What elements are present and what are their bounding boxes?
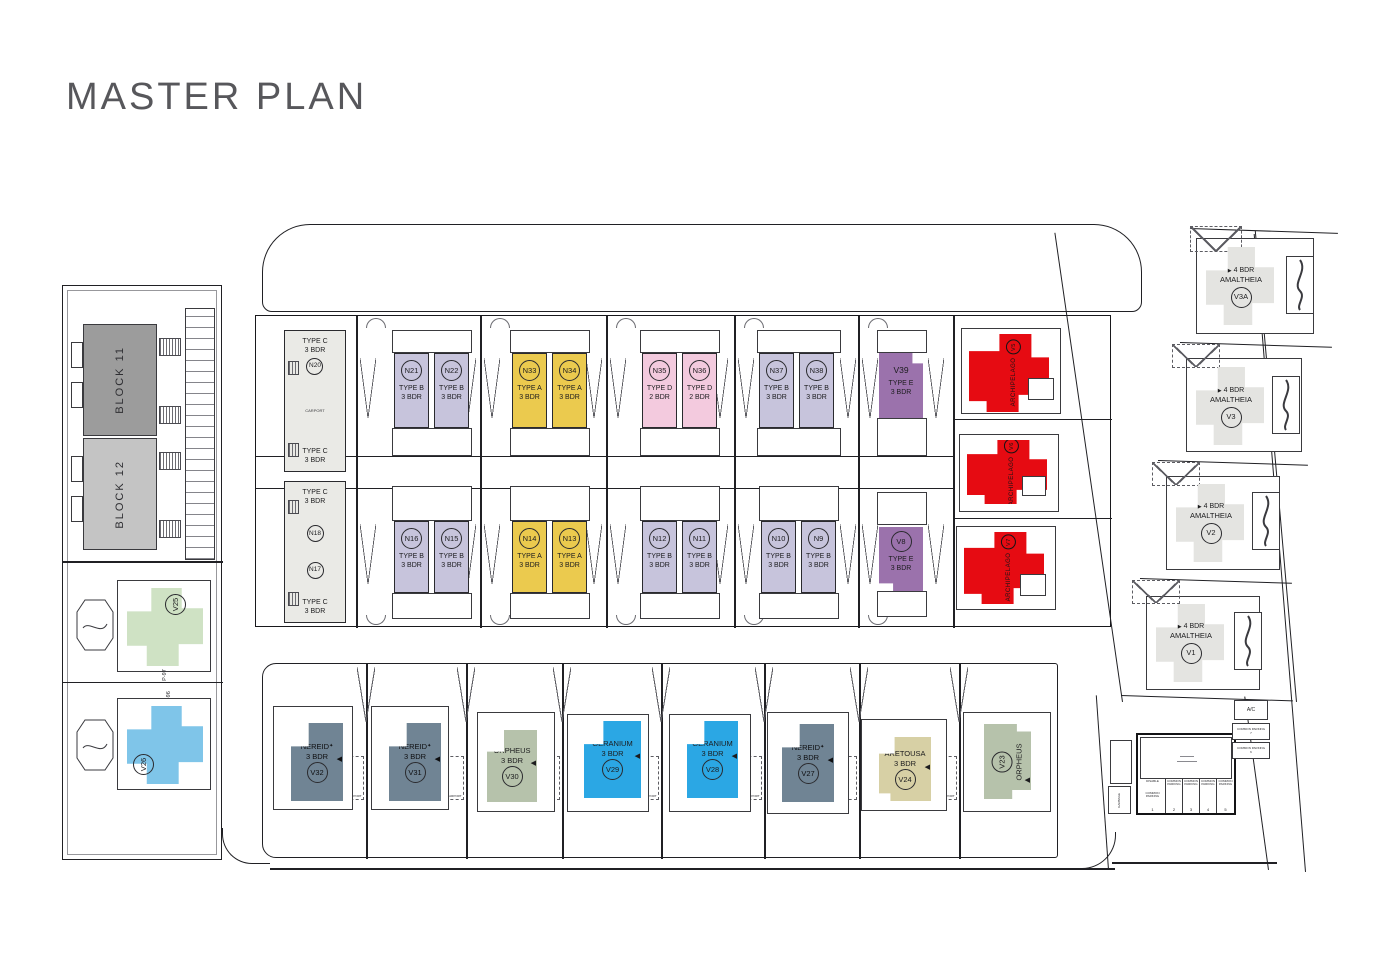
unit-type: TYPE B (766, 552, 791, 561)
unit-bdr: 3 BDR (401, 561, 422, 570)
stall-number: 3 (1190, 807, 1192, 812)
entry-arrow-icon: ◀ (435, 756, 440, 764)
unit-id-badge: N34 (559, 360, 580, 381)
entry-flag-icon: ▶ (1178, 624, 1182, 630)
stall-number: 7 (1250, 732, 1252, 735)
pool-shape (1287, 257, 1313, 313)
unit-id-badge: N16 (401, 528, 422, 549)
porch (759, 593, 839, 619)
unit-id-badge: N13 (559, 528, 580, 549)
villa-id-badge: V3 (1221, 407, 1242, 428)
stairs (288, 443, 299, 457)
unit-label-group: TYPE C 3 BDR (302, 598, 327, 616)
pool-shape (75, 718, 115, 772)
unit-bdr: 3 BDR (401, 393, 422, 402)
driveway-mark (610, 524, 626, 584)
door-swing (868, 318, 888, 328)
unit-id-badge: N21 (401, 360, 422, 381)
plan-detail (1180, 756, 1194, 757)
porch (877, 492, 927, 525)
villa-bdr: 3 BDR (501, 756, 523, 765)
villa-id: V1 (1186, 648, 1195, 658)
divider-line (734, 316, 736, 628)
porch (392, 486, 472, 521)
villa-id-badge: V30 (502, 766, 523, 787)
unit-type: TYPE C (302, 488, 327, 497)
unit-type: TYPE C (302, 598, 327, 607)
unit-bdr: 3 BDR (305, 607, 326, 616)
unit-type: TYPE B (399, 384, 424, 393)
stall-label: COMMON PARKING (1217, 780, 1234, 787)
west-section: BLOCK 11 BLOCK 12 V25 P-97 P-96 V26 (62, 285, 222, 860)
main-terrace-block: TYPE C 3 BDR N20 CARPORT TYPE C 3 BDR TY… (255, 315, 1111, 627)
stall-label: COMMON PARKING (1183, 780, 1199, 787)
unit-id: N11 (693, 534, 706, 544)
visitor-court (1140, 737, 1232, 779)
plan-block-n20: TYPE C 3 BDR N20 CARPORT TYPE C 3 BDR (284, 330, 346, 472)
unit-id: N10 (772, 534, 786, 544)
driveway-mark (586, 358, 602, 418)
common-parking-side: COMMON PARKING7 (1232, 723, 1270, 740)
driveway-mark (586, 524, 602, 584)
villa-label-group: V23 ORPHEUS (984, 724, 1031, 799)
villa-id: V7 (1006, 538, 1012, 546)
unit-id-badge: N33 (519, 360, 540, 381)
unit-type: TYPE B (764, 384, 789, 393)
unit-v8: V8TYPE E3 BDR (879, 527, 923, 591)
parking-label: P-97 (162, 669, 168, 681)
pool-shape (1235, 613, 1261, 669)
plot-divider (953, 518, 1112, 519)
villa-id-badge: V2 (1201, 523, 1222, 544)
unit-type: TYPE A (557, 552, 582, 561)
unit-id-badge: N14 (519, 528, 540, 549)
villa-bdr: 3 BDR (601, 749, 623, 758)
porch (640, 486, 720, 521)
villa-id-badge: V27 (798, 763, 819, 784)
unit-n16: N16TYPE B3 BDR (394, 521, 429, 593)
unit-bdr: 3 BDR (305, 497, 326, 506)
porch (757, 330, 841, 353)
driveway-mark (1132, 580, 1180, 604)
unit-id-badge: N35 (649, 360, 670, 381)
mews-lane-edge (256, 456, 953, 457)
villa-name: ARCHIPELAGO (1011, 358, 1017, 407)
parking-stall: COMMON PARKING2 (1166, 779, 1183, 813)
page-title: MASTER PLAN (66, 76, 367, 119)
villa-id: V2 (1206, 528, 1215, 538)
villa-id-badge: V29 (602, 759, 623, 780)
villa-id: V6 (1009, 442, 1015, 450)
villa-id: V3 (1226, 412, 1235, 422)
pool-shape (1273, 377, 1299, 433)
villa-id-badge: V23 (992, 751, 1013, 772)
villa-bdr: 4 BDR (1224, 387, 1245, 394)
carport-label: CARPORT (305, 409, 324, 413)
parking-stall: COMMON PARKING3 (1183, 779, 1200, 813)
driveway-mark (610, 358, 626, 418)
villa-id: V31 (408, 768, 421, 777)
unit-v39: V39TYPE E3 BDR (879, 353, 923, 418)
stall-number: 5 (1224, 807, 1226, 812)
unit-bdr: 2 BDR (649, 393, 670, 402)
unit-id-badge: N17 (307, 562, 324, 579)
unit-type: TYPE A (517, 384, 542, 393)
pool (1286, 256, 1314, 314)
unit-id: N34 (563, 366, 577, 376)
pool (75, 598, 115, 652)
villa-name: AMALTHEIA (1166, 511, 1256, 521)
villa-id-badge: V3A (1231, 287, 1252, 308)
entry-arrow-icon: ◀ (1025, 777, 1030, 785)
door-swing (616, 615, 636, 625)
ac-label: A/C (1247, 707, 1255, 713)
porch (877, 330, 927, 353)
divider-line (858, 316, 860, 628)
villa-id: V32 (310, 768, 323, 777)
plan-detail (1177, 761, 1197, 762)
unit-n21: N21TYPE B3 BDR (394, 353, 429, 428)
unit-bdr: 2 BDR (689, 393, 710, 402)
villa-id-badge: V25 (165, 594, 186, 615)
unit-bdr: 3 BDR (891, 564, 912, 573)
unit-type: TYPE B (804, 384, 829, 393)
unit-bdr: 3 BDR (768, 561, 789, 570)
entry-arrow-icon: ◀ (828, 757, 833, 765)
unit-bdr: 3 BDR (305, 456, 326, 465)
unit-n9: N9TYPE B3 BDR (801, 521, 836, 593)
parking-stall: COMMON PARKING4 (1200, 779, 1217, 813)
villa-name: ARCHIPELAGO (1009, 457, 1015, 506)
driveway-mark (840, 524, 856, 584)
stairs (159, 452, 181, 470)
unit-bdr: 3 BDR (689, 561, 710, 570)
unit-n13: N13TYPE A3 BDR (552, 521, 587, 593)
garbage-label: GARBAGE (1118, 793, 1121, 808)
pool-shape (75, 598, 115, 652)
villa-id: V23 (998, 755, 1007, 768)
driveway-mark (928, 358, 944, 418)
unit-bdr: 3 BDR (806, 393, 827, 402)
villa-id: V30 (505, 772, 518, 781)
villa-bdr: 4 BDR (1234, 267, 1255, 274)
driveway-mark (457, 667, 475, 722)
entry-arrow-icon: ◀ (635, 753, 640, 761)
unit-bdr: 3 BDR (766, 393, 787, 402)
villa-bdr: 3 BDR (797, 753, 819, 762)
pool-shape (1253, 493, 1279, 549)
entry-flag-icon: ▶ (1218, 388, 1222, 394)
stairs (288, 361, 299, 375)
unit-id-badge: N22 (441, 360, 462, 381)
villa-name: ORPHEUS (1015, 743, 1024, 780)
driveway-mark (928, 524, 944, 584)
door-swing (366, 615, 386, 625)
stall-label: COMMON PARKING (1200, 780, 1216, 787)
unit-id: N21 (405, 366, 419, 376)
porch (510, 593, 590, 619)
unit-type: TYPE A (557, 384, 582, 393)
porch (640, 593, 720, 619)
unit-id-badge: N20 (306, 358, 323, 375)
porch (392, 428, 472, 456)
block-11: BLOCK 11 (83, 324, 157, 436)
porch (392, 593, 472, 619)
unit-n14: N14TYPE A3 BDR (512, 521, 547, 593)
unit-n35: N35TYPE D2 BDR (642, 353, 677, 428)
star-icon: ✦ (329, 743, 333, 749)
villa-bdr: 3 BDR (701, 749, 723, 758)
door-swing (616, 318, 636, 328)
porch (510, 486, 590, 521)
plot-divider (953, 419, 1112, 420)
entry-arrow-icon: ◀ (337, 756, 342, 764)
unit-n38: N38TYPE B3 BDR (799, 353, 834, 428)
unit-id-badge: N36 (689, 360, 710, 381)
porch (757, 428, 841, 456)
unit-type: TYPE D (647, 384, 672, 393)
villa-bdr-line: ▶4 BDR (1186, 386, 1276, 395)
stairs (288, 592, 299, 606)
driveway-mark (652, 667, 670, 722)
unit-id-badge: N37 (766, 360, 787, 381)
south-road-line (270, 868, 1115, 870)
unit-type: TYPE B (806, 552, 831, 561)
stairs (159, 406, 181, 424)
unit-type: TYPE B (647, 552, 672, 561)
unit-id: N33 (523, 366, 537, 376)
unit-id-badge: N38 (806, 360, 827, 381)
door-swing (744, 318, 764, 328)
terrace (1020, 574, 1046, 596)
common-parking-block: DISABLECOMMON PARKING1 COMMON PARKING2 C… (1136, 733, 1236, 815)
villa-id-badge: V7 (1001, 535, 1016, 550)
driveway-mark (1172, 344, 1220, 368)
porch (510, 330, 590, 353)
plan-block-n18-n17: TYPE C 3 BDR N18 N17 TYPE C 3 BDR (284, 481, 346, 623)
unit-bdr: 3 BDR (559, 393, 580, 402)
unit-id-badge: N9 (808, 528, 829, 549)
unit-id-badge: N12 (649, 528, 670, 549)
villa-name: AMALTHEIA (1196, 275, 1286, 285)
villa-id-badge: V6 (1004, 439, 1019, 454)
unit-label-group: TYPE C 3 BDR (302, 447, 327, 465)
star-icon: ✦ (820, 744, 824, 750)
stall-label: COMMON PARKING (1140, 792, 1165, 799)
utility-box (1110, 740, 1132, 784)
common-bottom-line (1112, 862, 1277, 864)
unit-id: N14 (523, 534, 537, 544)
driveway-mark (850, 667, 868, 722)
unit-bdr: 3 BDR (891, 388, 912, 397)
villa-id: V29 (606, 765, 619, 774)
balcony (71, 342, 83, 368)
balcony (71, 496, 83, 522)
master-plan-page: MASTER PLAN BLOCK 11 BLOCK 12 V25 P-97 P… (0, 0, 1373, 977)
driveway-mark (738, 358, 754, 418)
villa-label-group: ▶4 BDR AMALTHEIA V2 (1166, 502, 1256, 544)
unit-bdr: 3 BDR (441, 393, 462, 402)
unit-id-badge: N15 (441, 528, 462, 549)
pool (1252, 492, 1280, 550)
unit-n33: N33TYPE A3 BDR (512, 353, 547, 428)
villa-id-badge: V32 (307, 762, 328, 783)
balcony (71, 382, 83, 408)
parking-stall: DISABLECOMMON PARKING1 (1140, 779, 1166, 813)
villa-label-group: ▶4 BDR AMALTHEIA V3 (1186, 386, 1276, 428)
entry-arrow-icon: ◀ (925, 764, 930, 772)
villa-id: V25 (171, 598, 180, 611)
divider-line (953, 316, 955, 628)
stairs (288, 500, 299, 514)
unit-n37: N37TYPE B3 BDR (759, 353, 794, 428)
pool (75, 718, 115, 772)
villa-bdr: 3 BDR (894, 759, 916, 768)
villa-v23-footprint: V23 ORPHEUS ◀ (984, 724, 1031, 799)
south-villas-row: CARPORT CARPORT CARPORT CARPORT CARPORT … (262, 663, 1058, 858)
villa-bdr: 3 BDR (404, 752, 426, 761)
porch (877, 418, 927, 456)
unit-id: N13 (563, 534, 577, 544)
unit-type: TYPE D (687, 384, 712, 393)
driveway-mark (862, 524, 878, 584)
unit-bdr: 3 BDR (441, 561, 462, 570)
unit-bdr: 3 BDR (649, 561, 670, 570)
unit-type: TYPE C (302, 447, 327, 456)
unit-id: N16 (405, 534, 419, 544)
villa-label-group: ▶4 BDR AMALTHEIA V3A (1196, 266, 1286, 308)
villa-id-badge: V24 (895, 769, 916, 790)
stall-number: 1 (1151, 807, 1153, 812)
unit-id-badge: N11 (689, 528, 710, 549)
unit-label-group: TYPE C 3 BDR N20 (302, 337, 327, 375)
star-icon: ✦ (427, 743, 431, 749)
villa-label-group: ▶4 BDR AMALTHEIA V1 (1146, 622, 1236, 664)
terrace (1022, 476, 1046, 496)
unit-bdr: 3 BDR (519, 393, 540, 402)
carport-label: CARPORT (447, 795, 462, 798)
villa-id: V3A (1234, 292, 1248, 302)
stall-label: COMMON PARKING (1166, 780, 1182, 787)
unit-type: TYPE B (439, 552, 464, 561)
villa-id: V28 (706, 765, 719, 774)
porch (877, 591, 927, 617)
entry-arrow-icon: ◀ (531, 760, 536, 768)
block-12-label: BLOCK 12 (114, 460, 126, 529)
unit-n10: N10TYPE B3 BDR (761, 521, 796, 593)
villa-name: AMALTHEIA (1186, 395, 1276, 405)
porch (510, 428, 590, 456)
block-11-label: BLOCK 11 (114, 346, 126, 414)
parking-stalls (185, 308, 215, 560)
unit-type: TYPE B (687, 552, 712, 561)
porch (392, 330, 472, 353)
villa-bdr: 4 BDR (1184, 623, 1205, 630)
unit-id: N18 (309, 530, 321, 538)
pool (1272, 376, 1300, 434)
villa-bdr-line: ▶4 BDR (1196, 266, 1286, 275)
unit-type: TYPE B (439, 384, 464, 393)
villa-id-badge: V28 (702, 759, 723, 780)
unit-n11: N11TYPE B3 BDR (682, 521, 717, 593)
unit-id-badge: N18 (307, 525, 324, 542)
stairs (159, 338, 181, 356)
unit-id: V8 (896, 537, 905, 547)
villa-id-badge: V26 (133, 754, 154, 775)
villa-id-badge: V1 (1181, 643, 1202, 664)
divider-line (480, 316, 482, 628)
villa-name: AMALTHEIA (1146, 631, 1236, 641)
unit-type: TYPE C (302, 337, 327, 346)
villa-name: ARCHIPELAGO (1006, 553, 1012, 602)
common-parking-side: COMMON PARKING6 (1232, 742, 1270, 759)
unit-n12: N12TYPE B3 BDR (642, 521, 677, 593)
driveway-mark (360, 524, 376, 584)
villa-id: V27 (801, 769, 814, 778)
unit-bdr: 3 BDR (559, 561, 580, 570)
stairs (159, 520, 181, 538)
unit-id: N37 (770, 366, 784, 376)
driveway-mark (360, 358, 376, 418)
stall-number: 4 (1207, 807, 1209, 812)
unit-id-badge: N10 (768, 528, 789, 549)
porch (640, 330, 720, 353)
common-parking-stalls: DISABLECOMMON PARKING1 COMMON PARKING2 C… (1140, 779, 1234, 813)
unit-id: N36 (693, 366, 707, 376)
villa-bdr-line: ▶4 BDR (1166, 502, 1256, 511)
unit-bdr: 3 BDR (519, 561, 540, 570)
unit-id: N9 (814, 534, 824, 544)
divider-line (606, 316, 608, 628)
door-swing (490, 615, 510, 625)
west-divider (63, 561, 223, 563)
pool (1234, 612, 1262, 670)
entry-arrow-icon: ◀ (732, 753, 737, 761)
driveway-mark (1152, 462, 1200, 486)
driveway-mark (484, 524, 500, 584)
ac-unit-box: A/C (1234, 700, 1268, 720)
unit-bdr: 3 BDR (305, 346, 326, 355)
unit-type: TYPE B (399, 552, 424, 561)
villa-id-badge: V31 (405, 762, 426, 783)
porch (759, 486, 839, 521)
villa-bdr: 3 BDR (306, 752, 328, 761)
parking-stall: COMMON PARKING5 (1217, 779, 1234, 813)
unit-id: N38 (810, 366, 824, 376)
unit-id: N35 (653, 366, 667, 376)
mews-lane-edge (256, 488, 953, 489)
porch (640, 428, 720, 456)
unit-n34: N34TYPE A3 BDR (552, 353, 587, 428)
stall-number: 6 (1250, 751, 1252, 754)
unit-id-badge: V8 (891, 531, 912, 552)
villa-bdr-line: ▶4 BDR (1146, 622, 1236, 631)
unit-n36: N36TYPE D2 BDR (682, 353, 717, 428)
stall-label: DISABLE (1146, 780, 1159, 783)
unit-type: TYPE A (517, 552, 542, 561)
villa-id-badge: V5 (1006, 340, 1021, 355)
unit-id: N15 (445, 534, 459, 544)
unit-id: N22 (445, 366, 459, 376)
unit-id: N17 (309, 566, 321, 574)
unit-label-group: TYPE C 3 BDR (302, 488, 327, 506)
unit-id: N12 (653, 534, 667, 544)
unit-bdr: 3 BDR (808, 561, 829, 570)
entry-flag-icon: ▶ (1198, 504, 1202, 510)
north-road (262, 224, 1142, 312)
unit-type: TYPE E (889, 379, 914, 388)
unit-id: N20 (309, 362, 321, 370)
